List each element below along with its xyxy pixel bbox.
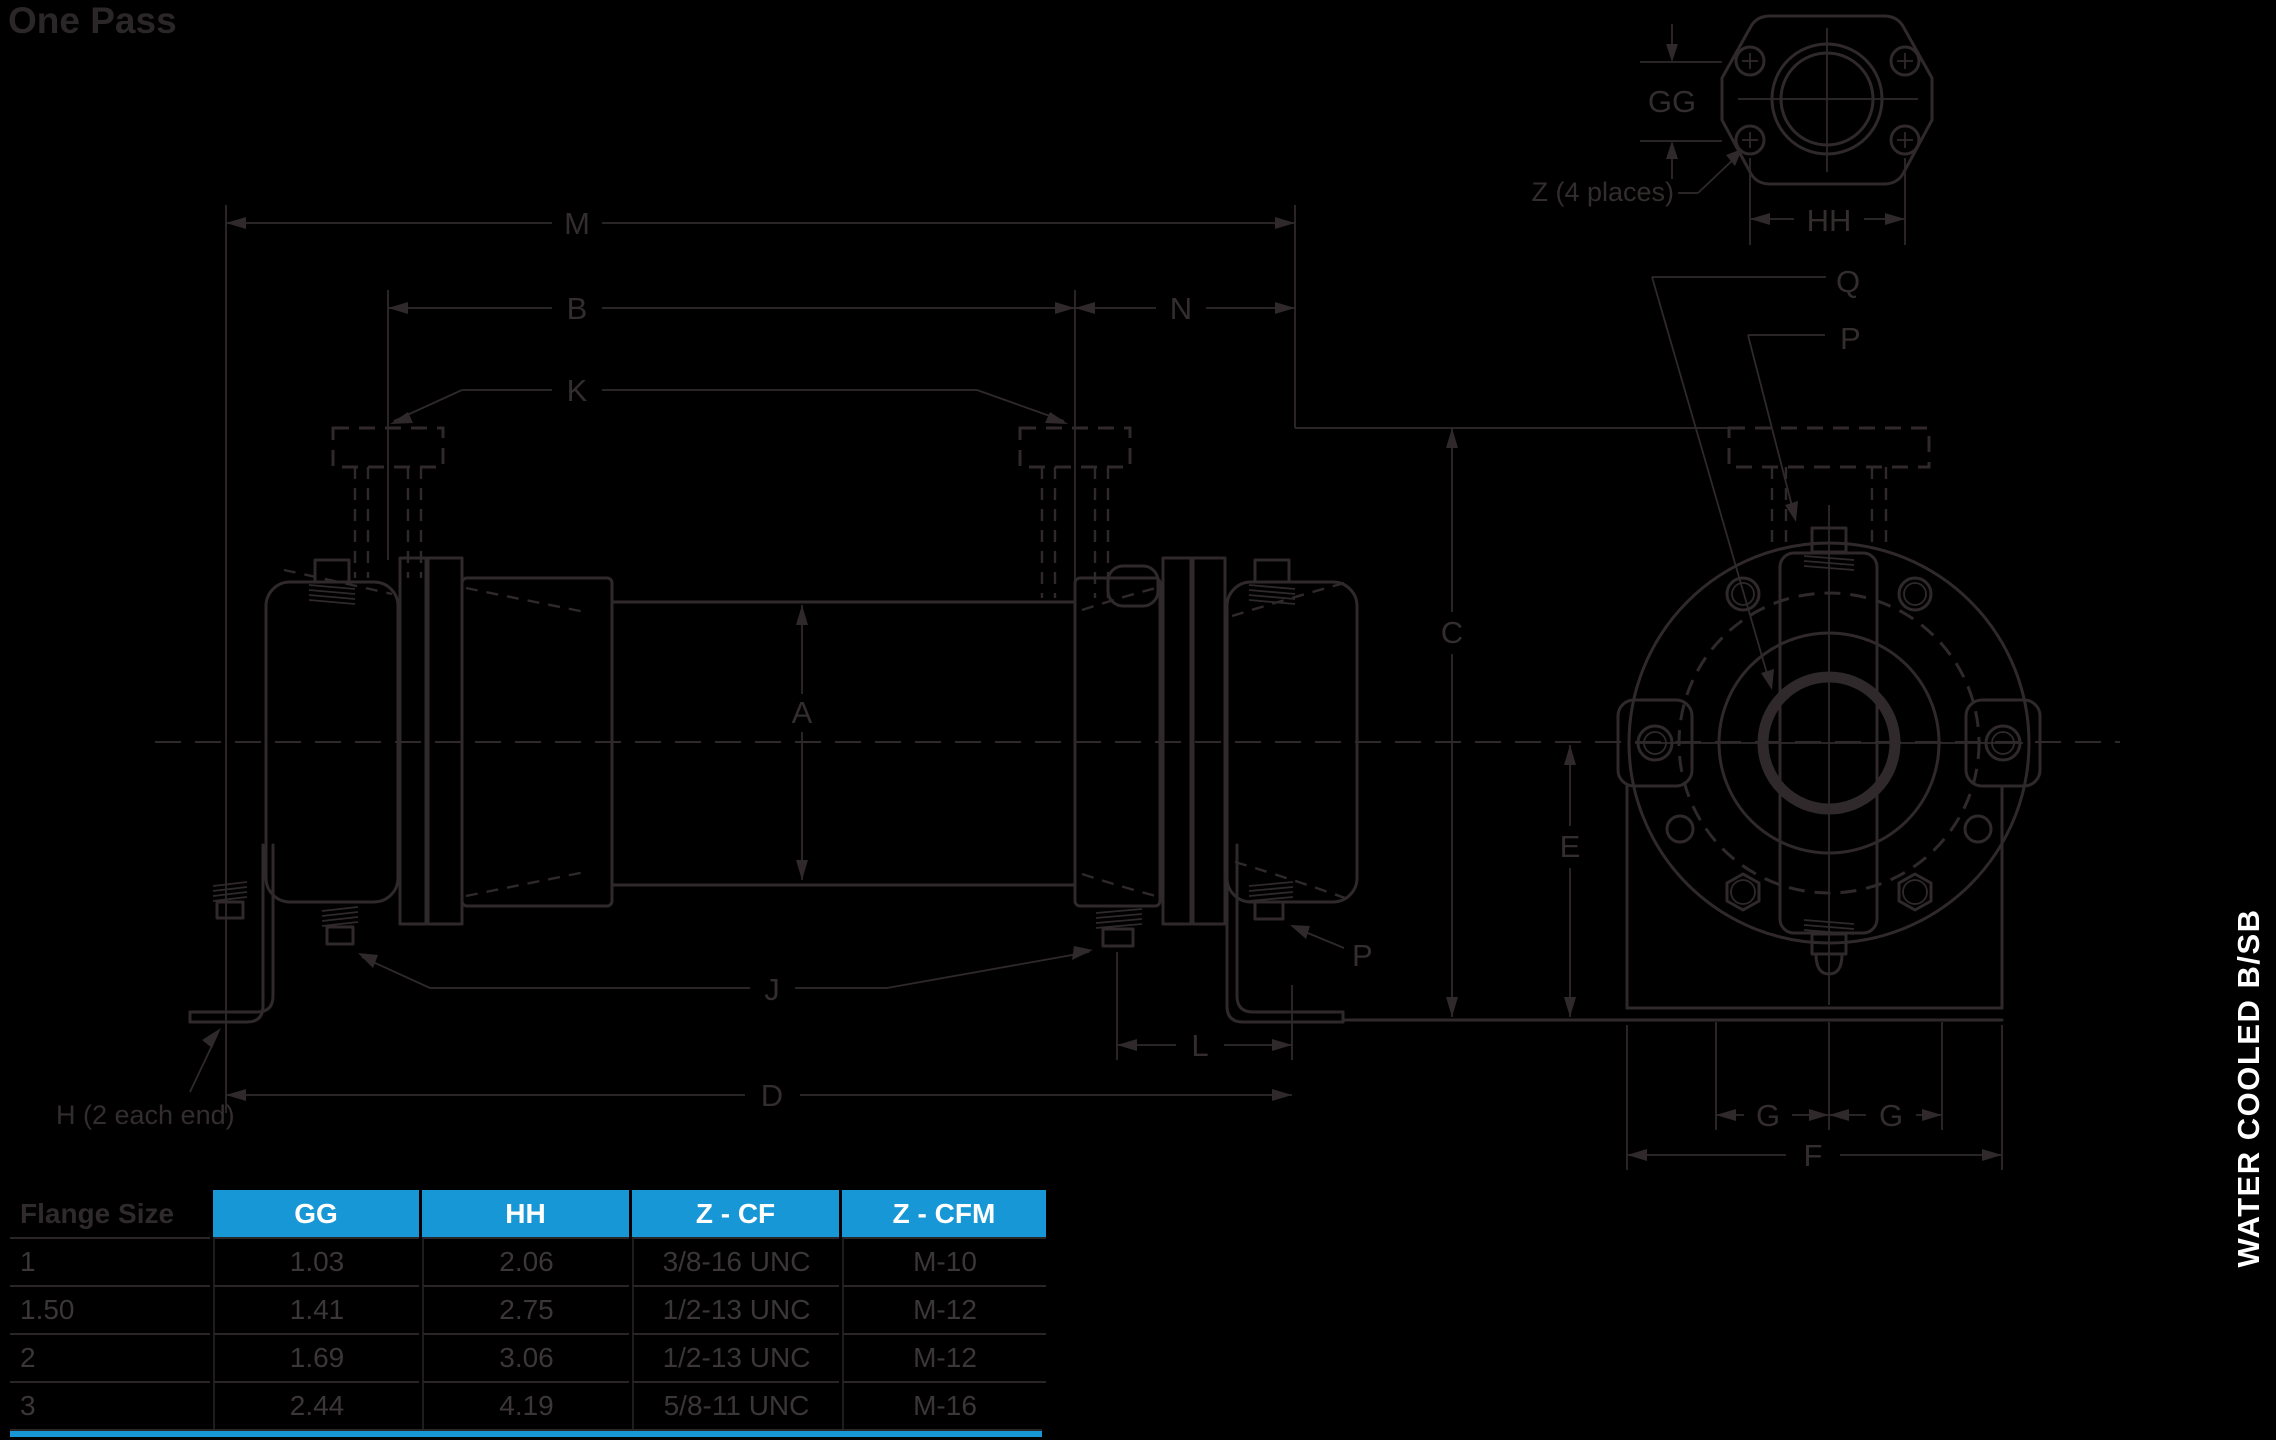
dim-label-B: B <box>567 291 588 326</box>
drain-plug <box>213 882 247 918</box>
hidden-line <box>1082 874 1156 896</box>
cell-flange-size: 1.50 <box>10 1285 210 1331</box>
table-header-gg: GG <box>213 1190 419 1237</box>
cell-zcfm: M-10 <box>842 1237 1046 1285</box>
cell-gg: 2.44 <box>213 1381 419 1429</box>
dim-label-P-side: P <box>1352 938 1373 973</box>
table-row: 3 2.44 4.19 5/8-11 UNC M-16 <box>10 1381 1042 1429</box>
flange-size-table: Flange Size GG HH Z - CF Z - CFM 1 1.03 … <box>10 1190 1042 1437</box>
table-header-zcfm: Z - CFM <box>842 1190 1046 1237</box>
cell-hh: 2.06 <box>422 1237 629 1285</box>
cell-flange-size: 1 <box>10 1237 210 1283</box>
cell-zcf: 1/2-13 UNC <box>632 1333 839 1381</box>
dim-label-D: D <box>761 1078 783 1113</box>
cell-hh: 4.19 <box>422 1381 629 1429</box>
dim-label-J: J <box>764 972 780 1007</box>
note-h: H (2 each end) <box>56 1100 235 1130</box>
cell-flange-size: 3 <box>10 1381 210 1427</box>
dim-label-E: E <box>1560 829 1581 864</box>
dim-label-A: A <box>792 695 813 730</box>
cell-zcf: 3/8-16 UNC <box>632 1237 839 1285</box>
cell-zcfm: M-12 <box>842 1285 1046 1333</box>
dim-label-M: M <box>564 206 590 241</box>
shell <box>612 602 1075 885</box>
dim-label-GG: GG <box>1648 84 1696 119</box>
foot-hole <box>1667 816 1693 842</box>
dim-label-P-end: P <box>1840 321 1861 356</box>
cell-gg: 1.69 <box>213 1333 419 1381</box>
dim-label-G-left: G <box>1756 1098 1780 1133</box>
cell-zcf: 1/2-13 UNC <box>632 1285 839 1333</box>
drain-plug <box>322 907 358 944</box>
cell-zcf: 5/8-11 UNC <box>632 1381 839 1429</box>
table-header-hh: HH <box>422 1190 629 1237</box>
dim-label-HH: HH <box>1807 203 1852 238</box>
table-header-flange-size: Flange Size <box>10 1190 210 1237</box>
dim-label-L: L <box>1191 1028 1208 1063</box>
side-view <box>190 428 1627 1022</box>
end-view: Q P G G F <box>1618 264 2040 1173</box>
left-foot-bracket <box>190 845 273 1022</box>
table-row: 2 1.69 3.06 1/2-13 UNC M-12 <box>10 1333 1042 1381</box>
table-header-zcf: Z - CF <box>632 1190 839 1237</box>
right-foot-bracket <box>1227 845 1343 1022</box>
dim-label-F: F <box>1804 1138 1823 1173</box>
cell-hh: 3.06 <box>422 1333 629 1381</box>
shell-lug <box>1108 566 1158 606</box>
note-z: Z (4 places) <box>1531 177 1674 207</box>
datasheet-page: One Pass <box>0 0 2276 1440</box>
hidden-line <box>466 588 585 612</box>
dim-label-Q: Q <box>1836 264 1860 299</box>
table-header-row: Flange Size GG HH Z - CF Z - CFM <box>10 1190 1042 1237</box>
hidden-line <box>466 872 585 896</box>
cell-zcfm: M-12 <box>842 1333 1046 1381</box>
cell-zcfm: M-16 <box>842 1381 1046 1429</box>
cell-hh: 2.75 <box>422 1285 629 1333</box>
table-row: 1 1.03 2.06 3/8-16 UNC M-10 <box>10 1237 1042 1285</box>
foot-hole <box>1965 816 1991 842</box>
drain-plug <box>1096 909 1142 946</box>
side-banner-text: WATER COOLED B/SB <box>2231 908 2266 1267</box>
cell-gg: 1.41 <box>213 1285 419 1333</box>
cell-flange-size: 2 <box>10 1333 210 1379</box>
dim-label-N: N <box>1170 291 1192 326</box>
cell-gg: 1.03 <box>213 1237 419 1285</box>
flange-detail: GG HH Z (4 places) <box>1531 16 1932 245</box>
dim-label-C: C <box>1441 615 1463 650</box>
dim-label-G-right: G <box>1879 1098 1903 1133</box>
vent-plug <box>309 560 355 604</box>
vent-plug <box>1249 560 1295 604</box>
table-row: 1.50 1.41 2.75 1/2-13 UNC M-12 <box>10 1285 1042 1333</box>
dimensions-side-view: M B N K A H (2 each end) D <box>56 205 1729 1130</box>
table-bottom-accent-bar <box>10 1429 1042 1437</box>
dim-label-K: K <box>567 373 588 408</box>
